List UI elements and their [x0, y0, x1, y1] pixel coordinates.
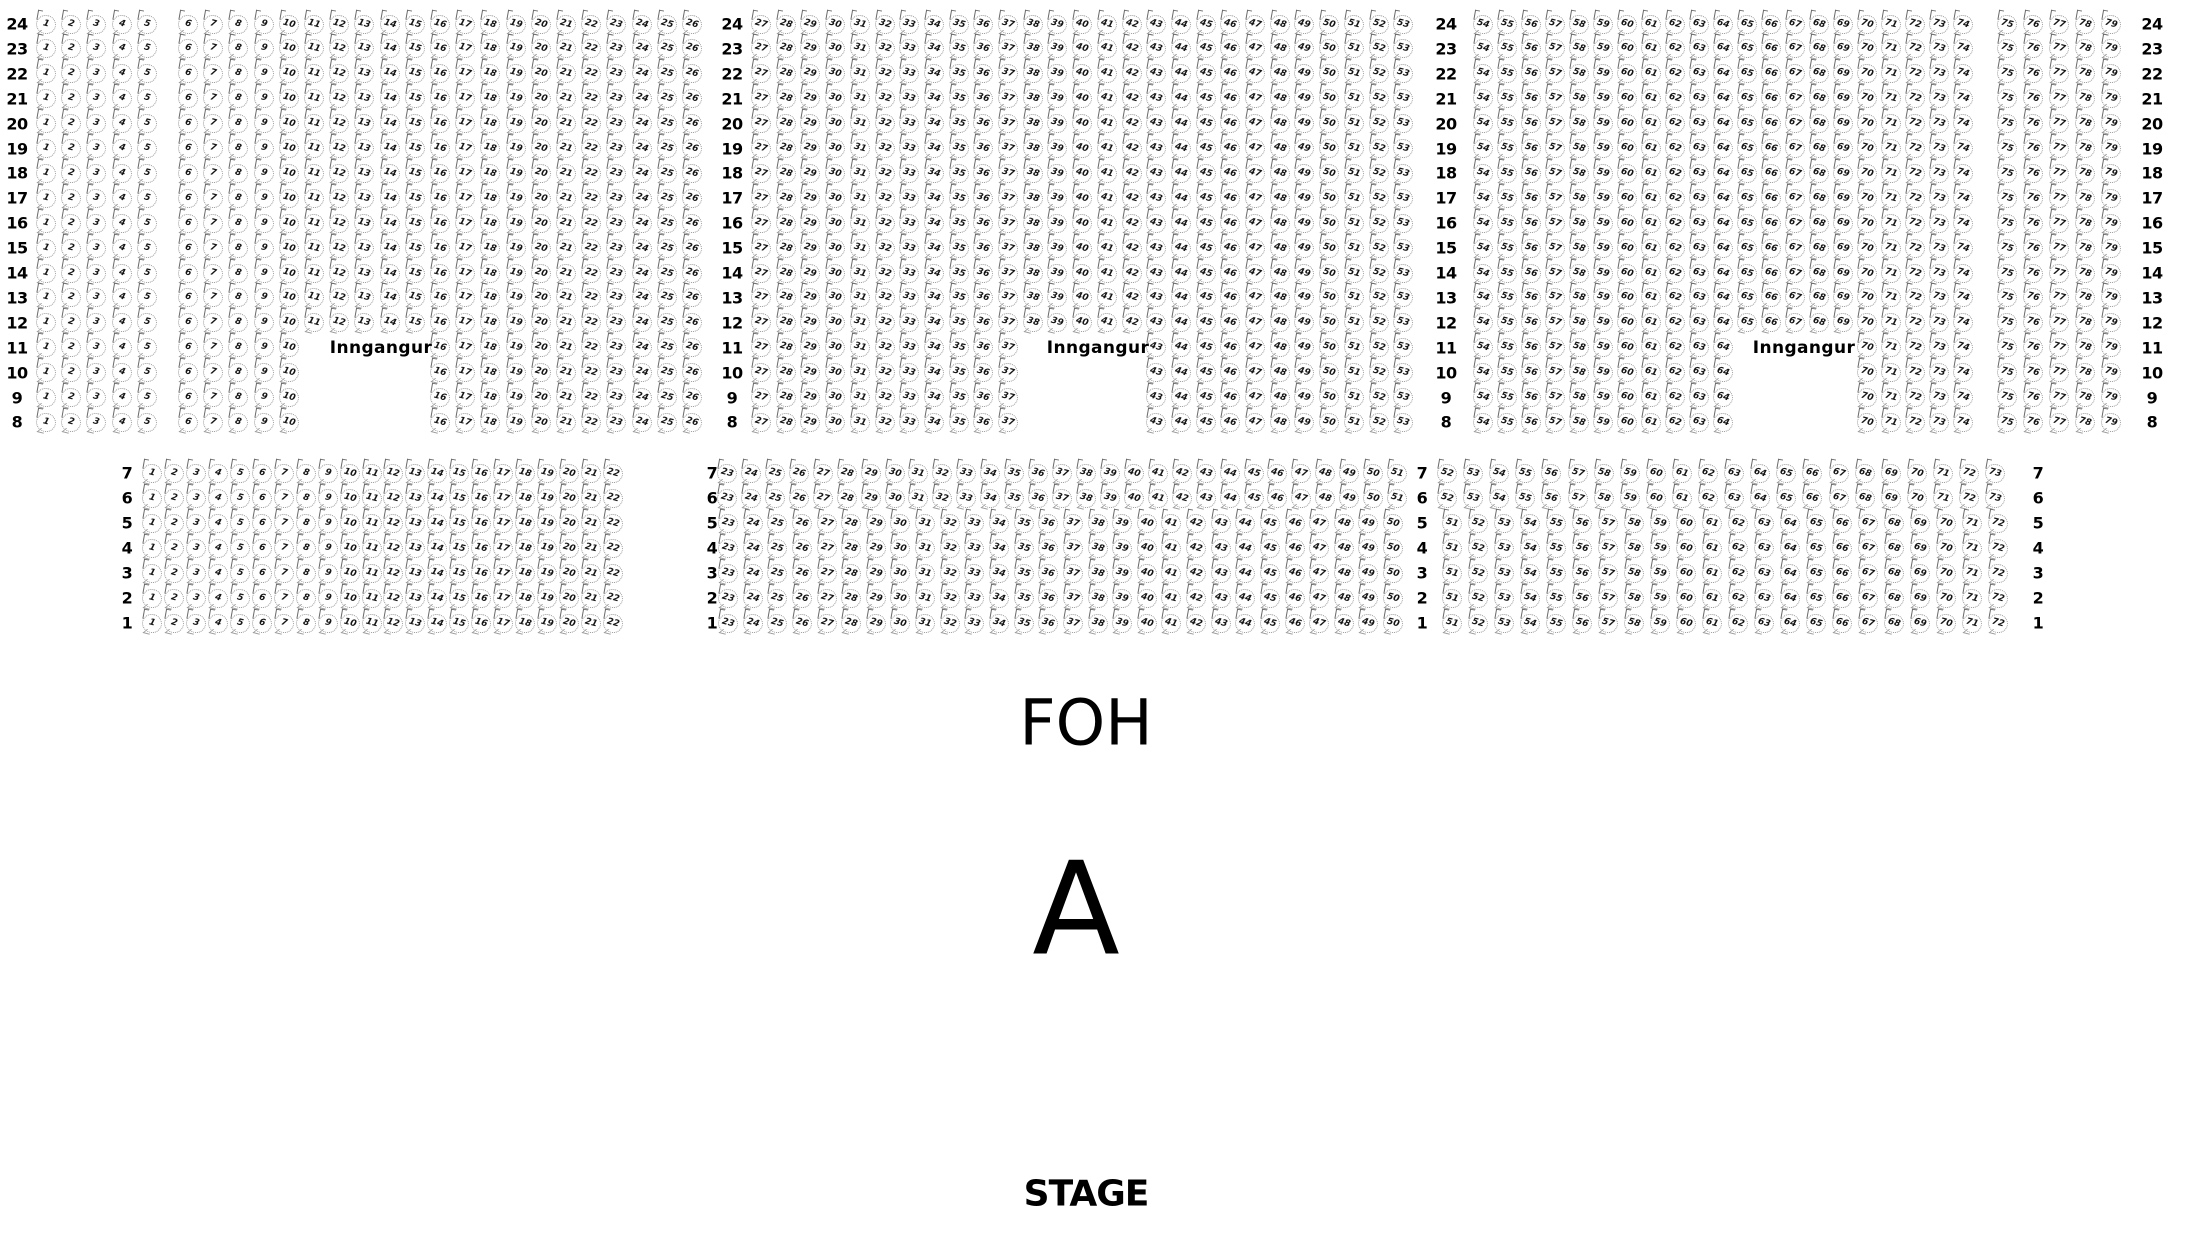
seat[interactable]: 70: [1934, 561, 1958, 585]
seat[interactable]: 25: [655, 62, 679, 86]
seat[interactable]: 32: [872, 236, 896, 260]
seat[interactable]: 59: [1591, 286, 1615, 310]
seat[interactable]: 15: [403, 62, 427, 86]
seat[interactable]: 53: [1461, 486, 1485, 510]
seat[interactable]: 30: [823, 386, 847, 410]
seat[interactable]: 40: [1135, 586, 1159, 610]
seat[interactable]: 47: [1243, 386, 1267, 410]
seat[interactable]: 57: [1596, 611, 1620, 635]
seat[interactable]: 61: [1639, 336, 1663, 360]
seat[interactable]: 9: [315, 611, 339, 635]
seat[interactable]: 35: [1011, 536, 1035, 560]
seat[interactable]: 49: [1292, 87, 1316, 111]
seat[interactable]: 8: [293, 611, 317, 635]
seat[interactable]: 8: [226, 211, 250, 235]
seat[interactable]: 1: [33, 137, 57, 161]
seat[interactable]: 3: [84, 361, 108, 385]
seat[interactable]: 46: [1218, 137, 1242, 161]
seat[interactable]: 73: [1927, 386, 1951, 410]
seat[interactable]: 36: [971, 386, 995, 410]
seat[interactable]: 5: [135, 162, 159, 186]
seat[interactable]: 22: [601, 461, 625, 485]
seat[interactable]: 9: [251, 311, 275, 335]
seat[interactable]: 65: [1735, 162, 1759, 186]
seat[interactable]: 37: [996, 112, 1020, 136]
seat[interactable]: 54: [1471, 112, 1495, 136]
seat[interactable]: 68: [1807, 137, 1831, 161]
seat[interactable]: 76: [2021, 286, 2045, 310]
seat[interactable]: 72: [1903, 211, 1927, 235]
seat[interactable]: 77: [2047, 411, 2071, 435]
seat[interactable]: 25: [655, 211, 679, 235]
seat[interactable]: 21: [579, 586, 603, 610]
seat[interactable]: 36: [971, 336, 995, 360]
seat[interactable]: 20: [529, 37, 553, 61]
seat[interactable]: 2: [162, 561, 186, 585]
seat[interactable]: 54: [1471, 62, 1495, 86]
seat[interactable]: 29: [798, 311, 822, 335]
seat[interactable]: 29: [798, 62, 822, 86]
seat[interactable]: 79: [2099, 211, 2123, 235]
seat[interactable]: 60: [1615, 336, 1639, 360]
seat[interactable]: 52: [1366, 386, 1390, 410]
seat[interactable]: 53: [1492, 511, 1516, 535]
seat[interactable]: 41: [1159, 536, 1183, 560]
seat[interactable]: 4: [206, 486, 230, 510]
seat[interactable]: 16: [428, 311, 452, 335]
seat[interactable]: 16: [469, 536, 493, 560]
seat[interactable]: 23: [604, 261, 628, 285]
seat[interactable]: 78: [2073, 37, 2097, 61]
seat[interactable]: 54: [1471, 336, 1495, 360]
seat[interactable]: 3: [84, 211, 108, 235]
seat[interactable]: 47: [1243, 62, 1267, 86]
seat[interactable]: 56: [1570, 561, 1594, 585]
seat[interactable]: 41: [1159, 561, 1183, 585]
seat[interactable]: 60: [1615, 37, 1639, 61]
seat[interactable]: 26: [790, 561, 814, 585]
seat[interactable]: 14: [377, 112, 401, 136]
seat[interactable]: 49: [1292, 361, 1316, 385]
seat[interactable]: 12: [381, 561, 405, 585]
seat[interactable]: 59: [1591, 162, 1615, 186]
seat[interactable]: 25: [655, 286, 679, 310]
seat[interactable]: 37: [1050, 486, 1074, 510]
seat[interactable]: 69: [1831, 162, 1855, 186]
seat[interactable]: 59: [1591, 311, 1615, 335]
seat[interactable]: 38: [1085, 586, 1109, 610]
seat[interactable]: 56: [1519, 311, 1543, 335]
seat[interactable]: 42: [1119, 187, 1143, 211]
seat[interactable]: 62: [1726, 586, 1750, 610]
seat[interactable]: 9: [251, 112, 275, 136]
seat[interactable]: 30: [823, 137, 847, 161]
seat[interactable]: 5: [228, 486, 252, 510]
seat[interactable]: 36: [1036, 561, 1060, 585]
seat[interactable]: 45: [1193, 336, 1217, 360]
seat[interactable]: 61: [1700, 561, 1724, 585]
seat[interactable]: 16: [428, 411, 452, 435]
seat[interactable]: 40: [1070, 37, 1094, 61]
seat[interactable]: 29: [864, 586, 888, 610]
seat[interactable]: 15: [447, 486, 471, 510]
seat[interactable]: 18: [478, 187, 502, 211]
seat[interactable]: 37: [1061, 561, 1085, 585]
seat[interactable]: 10: [277, 137, 301, 161]
seat[interactable]: 74: [1951, 87, 1975, 111]
seat[interactable]: 16: [428, 361, 452, 385]
seat[interactable]: 20: [529, 211, 553, 235]
seat[interactable]: 72: [1986, 586, 2010, 610]
seat[interactable]: 51: [1342, 112, 1366, 136]
seat[interactable]: 13: [403, 461, 427, 485]
seat[interactable]: 33: [897, 261, 921, 285]
seat[interactable]: 22: [601, 536, 625, 560]
seat[interactable]: 35: [1011, 611, 1035, 635]
seat[interactable]: 55: [1495, 336, 1519, 360]
seat[interactable]: 71: [1879, 311, 1903, 335]
seat[interactable]: 26: [787, 461, 811, 485]
seat[interactable]: 77: [2047, 336, 2071, 360]
seat[interactable]: 50: [1317, 286, 1341, 310]
seat[interactable]: 64: [1711, 211, 1735, 235]
seat[interactable]: 58: [1567, 386, 1591, 410]
seat[interactable]: 26: [680, 87, 704, 111]
seat[interactable]: 20: [529, 137, 553, 161]
seat[interactable]: 33: [954, 486, 978, 510]
seat[interactable]: 13: [352, 62, 376, 86]
seat[interactable]: 9: [251, 162, 275, 186]
seat[interactable]: 61: [1700, 536, 1724, 560]
seat[interactable]: 49: [1356, 536, 1380, 560]
seat[interactable]: 51: [1342, 336, 1366, 360]
seat[interactable]: 63: [1722, 486, 1746, 510]
seat[interactable]: 54: [1518, 611, 1542, 635]
seat[interactable]: 66: [1759, 286, 1783, 310]
seat[interactable]: 26: [790, 611, 814, 635]
seat[interactable]: 6: [176, 211, 200, 235]
seat[interactable]: 66: [1759, 137, 1783, 161]
seat[interactable]: 73: [1927, 411, 1951, 435]
seat[interactable]: 46: [1218, 361, 1242, 385]
seat[interactable]: 40: [1135, 511, 1159, 535]
seat[interactable]: 54: [1471, 386, 1495, 410]
seat[interactable]: 62: [1663, 386, 1687, 410]
seat[interactable]: 78: [2073, 261, 2097, 285]
seat[interactable]: 35: [946, 112, 970, 136]
seat[interactable]: 26: [790, 536, 814, 560]
seat[interactable]: 7: [272, 536, 296, 560]
seat[interactable]: 33: [897, 112, 921, 136]
seat[interactable]: 41: [1095, 137, 1119, 161]
seat[interactable]: 4: [110, 286, 134, 310]
seat[interactable]: 33: [897, 62, 921, 86]
seat[interactable]: 64: [1711, 37, 1735, 61]
seat[interactable]: 67: [1783, 62, 1807, 86]
seat[interactable]: 14: [377, 12, 401, 36]
seat[interactable]: 23: [716, 511, 740, 535]
seat[interactable]: 47: [1243, 361, 1267, 385]
seat[interactable]: 48: [1268, 361, 1292, 385]
seat[interactable]: 19: [503, 187, 527, 211]
seat[interactable]: 58: [1567, 336, 1591, 360]
seat[interactable]: 6: [250, 586, 274, 610]
seat[interactable]: 5: [228, 586, 252, 610]
seat[interactable]: 72: [1986, 561, 2010, 585]
seat[interactable]: 50: [1317, 211, 1341, 235]
seat[interactable]: 12: [327, 286, 351, 310]
seat[interactable]: 62: [1663, 137, 1687, 161]
seat[interactable]: 52: [1366, 361, 1390, 385]
seat[interactable]: 12: [327, 311, 351, 335]
seat[interactable]: 17: [491, 511, 515, 535]
seat[interactable]: 48: [1268, 37, 1292, 61]
seat[interactable]: 21: [554, 162, 578, 186]
seat[interactable]: 78: [2073, 236, 2097, 260]
seat[interactable]: 31: [848, 261, 872, 285]
seat[interactable]: 48: [1268, 137, 1292, 161]
seat[interactable]: 64: [1711, 261, 1735, 285]
seat[interactable]: 35: [946, 261, 970, 285]
seat[interactable]: 7: [201, 137, 225, 161]
seat[interactable]: 8: [226, 187, 250, 211]
seat[interactable]: 70: [1855, 286, 1879, 310]
seat[interactable]: 56: [1519, 336, 1543, 360]
seat[interactable]: 26: [680, 336, 704, 360]
seat[interactable]: 14: [377, 236, 401, 260]
seat[interactable]: 44: [1169, 87, 1193, 111]
seat[interactable]: 56: [1519, 236, 1543, 260]
seat[interactable]: 77: [2047, 261, 2071, 285]
seat[interactable]: 46: [1218, 286, 1242, 310]
seat[interactable]: 58: [1567, 162, 1591, 186]
seat[interactable]: 38: [1021, 137, 1045, 161]
seat[interactable]: 8: [293, 461, 317, 485]
seat[interactable]: 59: [1591, 336, 1615, 360]
seat[interactable]: 71: [1879, 386, 1903, 410]
seat[interactable]: 52: [1366, 336, 1390, 360]
seat[interactable]: 55: [1495, 311, 1519, 335]
seat[interactable]: 15: [447, 511, 471, 535]
seat[interactable]: 32: [938, 611, 962, 635]
seat[interactable]: 56: [1570, 511, 1594, 535]
seat[interactable]: 32: [872, 112, 896, 136]
seat[interactable]: 48: [1268, 62, 1292, 86]
seat[interactable]: 6: [176, 37, 200, 61]
seat[interactable]: 44: [1169, 236, 1193, 260]
seat[interactable]: 53: [1391, 211, 1415, 235]
seat[interactable]: 2: [59, 112, 83, 136]
seat[interactable]: 53: [1391, 286, 1415, 310]
seat[interactable]: 50: [1317, 261, 1341, 285]
seat[interactable]: 16: [428, 261, 452, 285]
seat[interactable]: 41: [1159, 611, 1183, 635]
seat[interactable]: 33: [897, 236, 921, 260]
seat[interactable]: 61: [1639, 361, 1663, 385]
seat[interactable]: 34: [922, 137, 946, 161]
seat[interactable]: 43: [1144, 236, 1168, 260]
seat[interactable]: 73: [1927, 62, 1951, 86]
seat[interactable]: 46: [1218, 261, 1242, 285]
seat[interactable]: 8: [226, 286, 250, 310]
seat[interactable]: 64: [1711, 236, 1735, 260]
seat[interactable]: 60: [1674, 536, 1698, 560]
seat[interactable]: 17: [453, 236, 477, 260]
seat[interactable]: 15: [447, 561, 471, 585]
seat[interactable]: 68: [1852, 461, 1876, 485]
seat[interactable]: 38: [1021, 286, 1045, 310]
seat[interactable]: 56: [1519, 361, 1543, 385]
seat[interactable]: 71: [1879, 236, 1903, 260]
seat[interactable]: 63: [1687, 286, 1711, 310]
seat[interactable]: 6: [176, 137, 200, 161]
seat[interactable]: 30: [882, 461, 906, 485]
seat[interactable]: 30: [823, 211, 847, 235]
seat[interactable]: 54: [1487, 486, 1511, 510]
seat[interactable]: 39: [1045, 286, 1069, 310]
seat[interactable]: 17: [491, 536, 515, 560]
seat[interactable]: 28: [774, 62, 798, 86]
seat[interactable]: 22: [579, 37, 603, 61]
seat[interactable]: 77: [2047, 112, 2071, 136]
seat[interactable]: 54: [1471, 162, 1495, 186]
seat[interactable]: 15: [403, 37, 427, 61]
seat[interactable]: 36: [971, 37, 995, 61]
seat[interactable]: 62: [1663, 311, 1687, 335]
seat[interactable]: 24: [629, 37, 653, 61]
seat[interactable]: 39: [1110, 586, 1134, 610]
seat[interactable]: 78: [2073, 211, 2097, 235]
seat[interactable]: 54: [1471, 137, 1495, 161]
seat[interactable]: 55: [1495, 87, 1519, 111]
seat[interactable]: 10: [337, 611, 361, 635]
seat[interactable]: 5: [135, 336, 159, 360]
seat[interactable]: 50: [1317, 87, 1341, 111]
seat[interactable]: 11: [302, 12, 326, 36]
seat[interactable]: 76: [2021, 211, 2045, 235]
seat[interactable]: 42: [1119, 37, 1143, 61]
seat[interactable]: 42: [1184, 611, 1208, 635]
seat[interactable]: 76: [2021, 386, 2045, 410]
seat[interactable]: 73: [1927, 187, 1951, 211]
seat[interactable]: 45: [1193, 386, 1217, 410]
seat[interactable]: 16: [469, 611, 493, 635]
seat[interactable]: 28: [774, 411, 798, 435]
seat[interactable]: 31: [848, 386, 872, 410]
seat[interactable]: 7: [201, 62, 225, 86]
seat[interactable]: 10: [337, 536, 361, 560]
seat[interactable]: 1: [140, 561, 164, 585]
seat[interactable]: 2: [59, 386, 83, 410]
seat[interactable]: 64: [1748, 461, 1772, 485]
seat[interactable]: 51: [1342, 411, 1366, 435]
seat[interactable]: 76: [2021, 112, 2045, 136]
seat[interactable]: 35: [946, 62, 970, 86]
seat[interactable]: 48: [1268, 261, 1292, 285]
seat[interactable]: 56: [1519, 411, 1543, 435]
seat[interactable]: 44: [1169, 187, 1193, 211]
seat[interactable]: 54: [1471, 361, 1495, 385]
seat[interactable]: 75: [1995, 162, 2019, 186]
seat[interactable]: 61: [1639, 261, 1663, 285]
seat[interactable]: 20: [557, 536, 581, 560]
seat[interactable]: 66: [1830, 536, 1854, 560]
seat[interactable]: 53: [1492, 586, 1516, 610]
seat[interactable]: 73: [1927, 112, 1951, 136]
seat[interactable]: 78: [2073, 112, 2097, 136]
seat[interactable]: 62: [1663, 12, 1687, 36]
seat[interactable]: 18: [478, 137, 502, 161]
seat[interactable]: 69: [1831, 187, 1855, 211]
seat[interactable]: 74: [1951, 62, 1975, 86]
seat[interactable]: 13: [352, 187, 376, 211]
seat[interactable]: 27: [749, 12, 773, 36]
seat[interactable]: 34: [978, 461, 1002, 485]
seat[interactable]: 1: [33, 261, 57, 285]
seat[interactable]: 10: [337, 586, 361, 610]
seat[interactable]: 55: [1544, 511, 1568, 535]
seat[interactable]: 18: [478, 62, 502, 86]
seat[interactable]: 14: [377, 62, 401, 86]
seat[interactable]: 7: [201, 37, 225, 61]
seat[interactable]: 76: [2021, 12, 2045, 36]
seat[interactable]: 12: [327, 37, 351, 61]
seat[interactable]: 53: [1391, 62, 1415, 86]
seat[interactable]: 63: [1687, 37, 1711, 61]
seat[interactable]: 21: [554, 211, 578, 235]
seat[interactable]: 32: [872, 37, 896, 61]
seat[interactable]: 23: [604, 12, 628, 36]
seat[interactable]: 6: [176, 87, 200, 111]
seat[interactable]: 70: [1934, 536, 1958, 560]
seat[interactable]: 2: [59, 261, 83, 285]
seat[interactable]: 38: [1021, 37, 1045, 61]
seat[interactable]: 48: [1268, 211, 1292, 235]
seat[interactable]: 7: [201, 87, 225, 111]
seat[interactable]: 43: [1144, 162, 1168, 186]
seat[interactable]: 68: [1807, 87, 1831, 111]
seat[interactable]: 78: [2073, 187, 2097, 211]
seat[interactable]: 30: [823, 87, 847, 111]
seat[interactable]: 59: [1591, 261, 1615, 285]
seat[interactable]: 17: [453, 286, 477, 310]
seat[interactable]: 27: [749, 411, 773, 435]
seat[interactable]: 48: [1268, 336, 1292, 360]
seat[interactable]: 53: [1391, 236, 1415, 260]
seat[interactable]: 4: [110, 162, 134, 186]
seat[interactable]: 70: [1855, 137, 1879, 161]
seat[interactable]: 5: [228, 561, 252, 585]
seat[interactable]: 23: [604, 37, 628, 61]
seat[interactable]: 46: [1218, 336, 1242, 360]
seat[interactable]: 3: [84, 12, 108, 36]
seat[interactable]: 25: [655, 236, 679, 260]
seat[interactable]: 40: [1070, 87, 1094, 111]
seat[interactable]: 19: [503, 12, 527, 36]
seat[interactable]: 21: [554, 286, 578, 310]
seat[interactable]: 15: [403, 261, 427, 285]
seat[interactable]: 58: [1567, 286, 1591, 310]
seat[interactable]: 36: [971, 361, 995, 385]
seat[interactable]: 5: [135, 37, 159, 61]
seat[interactable]: 9: [251, 261, 275, 285]
seat[interactable]: 38: [1021, 12, 1045, 36]
seat[interactable]: 35: [946, 187, 970, 211]
seat[interactable]: 16: [428, 386, 452, 410]
seat[interactable]: 40: [1070, 211, 1094, 235]
seat[interactable]: 27: [749, 236, 773, 260]
seat[interactable]: 21: [554, 137, 578, 161]
